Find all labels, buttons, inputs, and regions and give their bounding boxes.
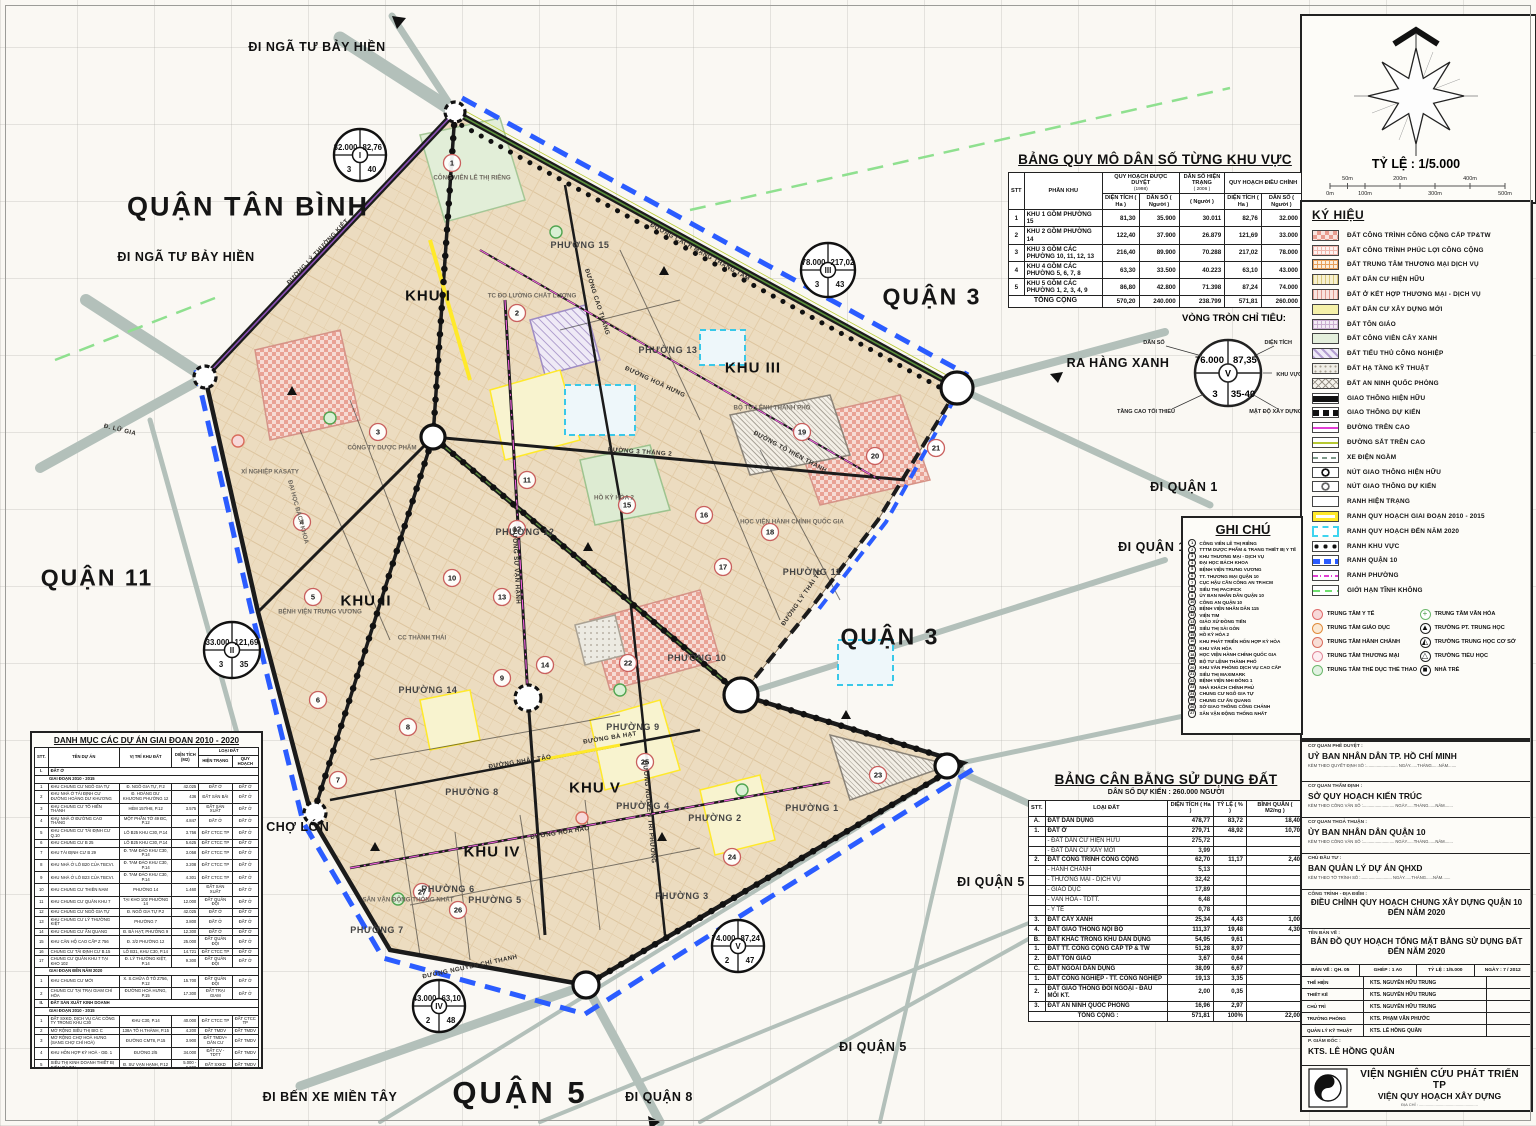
svg-text:50m: 50m bbox=[1342, 176, 1353, 182]
population-row: 1KHU 1 GỒM PHƯỜNG 1581,3035.90030.01182,… bbox=[1009, 210, 1302, 227]
legend-box: KÝ HIỆU ĐẤT CÔNG TRÌNH CÔNG CỘNG CẤP TP&… bbox=[1300, 200, 1533, 740]
legend-poi-item: TRUNG TÂM Y TẾ bbox=[1312, 608, 1418, 621]
legend-poi-grid: TRUNG TÂM Y TẾ+TRUNG TÂM VĂN HÓATRUNG TÂ… bbox=[1312, 608, 1531, 677]
svg-text:100m: 100m bbox=[1358, 191, 1372, 197]
poi-symbol-icon: △ bbox=[1420, 651, 1431, 662]
legend-swatch-bardash-icon bbox=[1312, 407, 1339, 418]
project-row: 14KHU CHUNG CƯ ẤN QUANGĐ. BÀ HẠT, PHƯỜNG… bbox=[35, 928, 259, 936]
project-row: 1KHU CHUNG CƯ MỚIX. S.CHỮA Ô TÔ Z756, P.… bbox=[35, 975, 259, 987]
map-label: ĐƯỜNG LÝ THƯỜNG KIỆT bbox=[286, 218, 351, 287]
legend-item: ĐƯỜNG TRÊN CAO bbox=[1312, 420, 1531, 435]
compass-box: TỶ LỆ : 1/5.000 50m 200m 400m 0m 100m 30… bbox=[1300, 14, 1536, 204]
poi-symbol-icon: ◭ bbox=[1420, 637, 1431, 648]
drawing-info-cell: TỶ LỆ : 1/5.000 bbox=[1417, 965, 1475, 976]
map-label: PHƯỜNG 13 bbox=[638, 345, 697, 355]
map-label: ĐƯỜNG NGUYỄN TRI PHƯƠNG bbox=[641, 760, 657, 863]
landuse-row: - THƯƠNG MẠI - DỊCH VỤ32,42 bbox=[1029, 876, 1304, 886]
projects-group-row: GIAI ĐOẠN 2010 - 2015 bbox=[35, 776, 259, 784]
landuse-row: 1.ĐẤT CÔNG NGHIỆP - TT. CÔNG NGHIỆP19,13… bbox=[1029, 975, 1304, 985]
map-label: PHƯỜNG 15 bbox=[550, 240, 609, 250]
legend-item: GIAO THÔNG DỰ KIẾN bbox=[1312, 406, 1531, 421]
legend-swatch-nodedash-icon bbox=[1312, 481, 1339, 492]
svg-text:0m: 0m bbox=[1326, 191, 1334, 197]
title-block: CƠ QUAN PHÊ DUYỆT :UỶ BAN NHÂN DÂN TP. H… bbox=[1300, 740, 1533, 1112]
landuse-row: - VĂN HÓA - TDTT.6,48 bbox=[1029, 895, 1304, 905]
map-label: PHƯỜNG 7 bbox=[350, 925, 403, 935]
institute-name-2: VIỆN QUY HOẠCH XÂY DỰNG bbox=[1354, 1091, 1525, 1101]
title-block-info-row: BẢN VẼ : QH. 05GHÉP : 1 A0TỶ LỆ : 1/5.00… bbox=[1302, 965, 1531, 977]
poi-symbol-icon bbox=[1312, 637, 1323, 648]
project-row: 3KHU CHUNG CƯ TÔ HIẾN THÀNHHẺM 157/H8, P… bbox=[35, 803, 259, 815]
map-label: PHƯỜNG 3 bbox=[655, 891, 708, 901]
projects-table: STT.TÊN DỰ ÁNVỊ TRÍ KHU ĐẤTDIỆN TÍCH (M2… bbox=[34, 747, 259, 1069]
landuse-row: - ĐẤT DÂN CƯ XÂY MỚI3,99 bbox=[1029, 846, 1304, 856]
legend-item: ĐẤT DÂN CƯ HIỆN HỮU bbox=[1312, 272, 1531, 287]
map-label: CÔNG TY DƯỢC PHẨM bbox=[347, 445, 416, 452]
svg-text:V: V bbox=[1225, 369, 1231, 379]
poi-symbol-icon bbox=[1312, 651, 1323, 662]
svg-text:200m: 200m bbox=[1393, 176, 1407, 182]
landuse-row: - ĐẤT DÂN CƯ HIỆN HỮU275,72 bbox=[1029, 836, 1304, 846]
svg-text:76.000: 76.000 bbox=[1195, 355, 1224, 366]
legend-poi-item: TRUNG TÂM GIÁO DỤC bbox=[1312, 622, 1418, 635]
map-label: KHU III bbox=[725, 360, 781, 377]
legend-item: ĐẤT TÔN GIÁO bbox=[1312, 317, 1531, 332]
map-label: ĐƯỜNG CAO THẮNG bbox=[583, 268, 611, 336]
projects-table-title: DANH MỤC CÁC DỰ ÁN GIAI ĐOẠN 2010 - 2020 bbox=[34, 736, 259, 745]
legend-poi-item: △TRƯỜNG TIỂU HỌC bbox=[1420, 650, 1526, 663]
landuse-row: 3.ĐẤT AN NINH QUỐC PHÒNG16,962,97 bbox=[1029, 1001, 1304, 1011]
legend-item: NÚT GIAO THÔNG DỰ KIẾN bbox=[1312, 480, 1531, 495]
legend-poi-item: TRUNG TÂM HÀNH CHÁNH bbox=[1312, 636, 1418, 649]
legend-item: ĐẤT CÔNG TRÌNH CÔNG CỘNG CẤP TP&TW bbox=[1312, 228, 1531, 243]
population-row: 4KHU 4 GỒM CÁC PHƯỜNG 5, 6, 7, 863,3033.… bbox=[1009, 261, 1302, 278]
map-label: QUẬN 5 bbox=[452, 1075, 587, 1111]
title-block-role-row: THIẾT KẾKTS. NGUYỄN HỮU TRUNG bbox=[1302, 989, 1531, 1001]
legend-item: ĐẤT HẠ TẦNG KỸ THUẬT bbox=[1312, 361, 1531, 376]
legend-item: ĐẤT CÔNG VIÊN CÂY XANH bbox=[1312, 332, 1531, 347]
map-label: ĐƯỜNG NGUYỄN CHÍ THANH bbox=[422, 954, 518, 981]
legend-item: GIAO THÔNG HIỆN HỮU bbox=[1312, 391, 1531, 406]
legend-item: ĐẤT DÂN CƯ XÂY DỰNG MỚI bbox=[1312, 302, 1531, 317]
project-row: 5KHU CHUNG CƯ TÁI ĐỊNH CƯ Q.10LÔ B25 KHU… bbox=[35, 827, 259, 839]
svg-text:87,35: 87,35 bbox=[1233, 355, 1257, 366]
population-row: 3KHU 3 GỒM CÁC PHƯỜNG 10, 11, 12, 13216,… bbox=[1009, 244, 1302, 261]
map-label: ĐI QUẬN 1 bbox=[1118, 540, 1186, 554]
project-row: 16CHUNG CƯ TÁI ĐỊNH CƯ B.15LÔ B31, KHU C… bbox=[35, 948, 259, 956]
map-label: PHƯỜNG 1 bbox=[785, 803, 838, 813]
legend-swatch-pstripe-icon bbox=[1312, 348, 1339, 359]
legend-swatch-vlpink-icon bbox=[1312, 289, 1339, 300]
project-row: 17CHUNG CƯ QUÂN KHU 7 TẠI KHO 102Đ. LÝ T… bbox=[35, 956, 259, 968]
legend-swatch-metro-icon bbox=[1312, 452, 1339, 463]
project-row: 7KHU TÁI ĐỊNH CƯ B 29Đ. TAM ĐẢO KHU C30,… bbox=[35, 847, 259, 859]
scale-label: TỶ LỆ : 1/5.000 bbox=[1372, 156, 1460, 171]
population-table: STTPHÂN KHUQUY HOẠCH ĐƯỢC DUYỆT(1998)DÂN… bbox=[1008, 172, 1302, 308]
map-label: KHU V bbox=[569, 780, 621, 797]
map-label: ĐI QUẬN 5 bbox=[839, 1040, 907, 1054]
indicator-title: VÒNG TRÒN CHỈ TIÊU: bbox=[1182, 312, 1286, 324]
landuse-row: 4.ĐẤT GIAO THÔNG NỘI BỘ111,3719,484,30 bbox=[1029, 925, 1304, 935]
svg-text:TẦNG CAO TỐI THIỂU: TẦNG CAO TỐI THIỂU bbox=[1117, 408, 1175, 415]
legend-poi-item: TRUNG TÂM THỂ DỤC THỂ THAO bbox=[1312, 664, 1418, 677]
legend-item: ĐƯỜNG SẮT TRÊN CAO bbox=[1312, 435, 1531, 450]
population-table-title: BẢNG QUY MÔ DÂN SỐ TỪNG KHU VỰC bbox=[1008, 152, 1302, 167]
map-label: ĐƯỜNG HÒA HẢO bbox=[530, 825, 590, 841]
title-block-roles: THỂ HIỆNKTS. NGUYỄN HỮU TRUNGTHIẾT KẾKTS… bbox=[1302, 977, 1531, 1037]
svg-text:500m: 500m bbox=[1498, 191, 1512, 197]
project-row: 1ĐẤT SXKD, DỊCH VỤ CÁC CÔNG TY TRONG KHU… bbox=[35, 1015, 259, 1027]
project-row: 9KHU NHÀ Ở LÔ B23 CỦA TBCVI.Đ. TAM ĐẢO K… bbox=[35, 872, 259, 884]
landuse-row: 1.ĐẤT TT. CÔNG CỘNG CẤP TP & TW51,288,97 bbox=[1029, 945, 1304, 955]
legend-poi-item: ◭TRƯỜNG TRUNG HỌC CƠ SỞ bbox=[1420, 636, 1526, 649]
title-block-approval-section: CƠ QUAN THẨM ĐỊNH :SỞ QUY HOẠCH KIẾN TRÚ… bbox=[1302, 782, 1531, 818]
map-label: QUẬN 11 bbox=[41, 565, 153, 592]
map-label: PHƯỜNG 14 bbox=[398, 685, 457, 695]
legend-swatch-yellow-icon bbox=[1312, 304, 1339, 315]
map-label: PHƯỜNG 5 bbox=[468, 895, 521, 905]
project-row: 5SIÊU THỊ KINH DOANH THIẾT BỊ ĐIỆN TỬ TI… bbox=[35, 1059, 259, 1069]
title-block-approval-section: CHỦ ĐẦU TƯ :BAN QUẢN LÝ DỰ ÁN QHXDKÈM TH… bbox=[1302, 854, 1531, 890]
legend-item: RANH KHU VỰC bbox=[1312, 539, 1531, 554]
title-block-approval-section: CƠ QUAN PHÊ DUYỆT :UỶ BAN NHÂN DÂN TP. H… bbox=[1302, 742, 1531, 782]
project-row: 15KHU CĂN HỘ CAO CẤP Z 756Đ. 3/2 PHƯỜNG … bbox=[35, 936, 259, 948]
project-row: 11KHU CHUNG CƯ QUÂN KHU 7TẠI KHO 102 PHƯ… bbox=[35, 896, 259, 908]
map-label: ĐI BẾN XE MIỀN TÂY bbox=[263, 1090, 398, 1104]
legend-item: NÚT GIAO THÔNG HIỆN HỮU bbox=[1312, 465, 1531, 480]
map-label: KHU II bbox=[341, 593, 392, 610]
landuse-row: - HÀNH CHÁNH5,13 bbox=[1029, 866, 1304, 876]
map-label: PHƯỜNG 2 bbox=[688, 813, 741, 823]
map-label: SÂN VẬN ĐỘNG THỐNG NHẤT bbox=[362, 897, 453, 904]
project-row: 1KHU CHUNG CƯ NGÔ GIA TỰĐ. NGÔ GIA TỰ, P… bbox=[35, 783, 259, 791]
map-label: ĐƯỜNG 3 THÁNG 2 bbox=[608, 446, 673, 457]
map-label: TC ĐO LƯỜNG CHẤT LƯỢNG bbox=[488, 293, 577, 300]
legend-items: ĐẤT CÔNG TRÌNH CÔNG CỘNG CẤP TP&TWĐẤT CÔ… bbox=[1312, 228, 1531, 598]
project-row: 2CHUNG CƯ TẠI TRẠI GIAM CHÍ HÒAĐƯỜNG HOÀ… bbox=[35, 988, 259, 1000]
map-label: QUẬN 3 bbox=[883, 284, 982, 311]
landuse-row: - Y TẾ0,78 bbox=[1029, 905, 1304, 915]
legend-poi-item: ▲TRƯỜNG PT. TRUNG HỌC bbox=[1420, 622, 1526, 635]
poi-symbol-icon: + bbox=[1420, 609, 1431, 620]
legend-item: XE ĐIỆN NGẦM bbox=[1312, 450, 1531, 465]
projects-group-row: GIAI ĐOẠN 2010 - 2015 bbox=[35, 1008, 259, 1016]
institute-logo bbox=[1308, 1068, 1348, 1108]
map-label: ĐI NGÃ TƯ BẢY HIỀN bbox=[117, 250, 254, 264]
legend-item: ĐẤT TRUNG TÂM THƯƠNG MẠI DỊCH VỤ bbox=[1312, 258, 1531, 273]
landuse-table-title: BẢNG CÂN BẰNG SỬ DỤNG ĐẤT bbox=[1028, 772, 1304, 787]
drawing-info-cell: GHÉP : 1 A0 bbox=[1360, 965, 1418, 976]
compass-rose: TỶ LỆ : 1/5.000 50m 200m 400m 0m 100m 30… bbox=[1302, 16, 1531, 198]
map-label: Đ. LỮ GIA bbox=[103, 423, 137, 438]
legend-swatch-node-icon bbox=[1312, 467, 1339, 478]
map-label: PHƯỜNG 6 bbox=[421, 884, 474, 894]
poi-symbol-icon: ▲ bbox=[1420, 623, 1431, 634]
landuse-row: 3.ĐẤT CÂY XANH25,344,431,00 bbox=[1029, 915, 1304, 925]
legend-item: RANH QUY HOẠCH GIAI ĐOẠN 2010 - 2015 bbox=[1312, 509, 1531, 524]
legend-swatch-rail-icon bbox=[1312, 437, 1339, 448]
map-label: PHƯỜNG 4 bbox=[616, 801, 669, 811]
map-label: PHƯỜNG 12 bbox=[495, 527, 554, 537]
project-row: 8KHU NHÀ Ở LÔ B20 CỦA TBCVI.Đ. TAM ĐẢO K… bbox=[35, 860, 259, 872]
map-label: ĐI QUẬN 8 bbox=[625, 1090, 693, 1104]
poi-symbol-icon bbox=[1312, 623, 1323, 634]
svg-text:KHU VỰC: KHU VỰC bbox=[1276, 372, 1302, 378]
plan-sheet: 1234567891011121314151617181920212223242… bbox=[0, 0, 1536, 1126]
title-block-approvals: CƠ QUAN PHÊ DUYỆT :UỶ BAN NHÂN DÂN TP. H… bbox=[1302, 742, 1531, 890]
legend-swatch-vlyellow-icon bbox=[1312, 274, 1339, 285]
map-label: KHU IV bbox=[464, 844, 521, 861]
title-block-role-row: QUẢN LÝ KỸ THUẬTKTS. LÊ HỒNG QUÂN bbox=[1302, 1025, 1531, 1037]
legend-item: ĐẤT CÔNG TRÌNH PHÚC LỢI CÔNG CỘNG bbox=[1312, 243, 1531, 258]
map-label: QUẬN 3 bbox=[841, 624, 940, 651]
poi-symbol-icon bbox=[1312, 665, 1323, 676]
map-label: ĐƯỜNG NHẬT TẢO bbox=[488, 754, 552, 771]
landuse-row: 1.ĐẤT Ở279,7148,9210,70 bbox=[1029, 826, 1304, 836]
map-label: ĐI QUẬN 1 bbox=[1150, 480, 1218, 494]
map-label: ĐƯỜNG TÔ HIẾN THÀNH bbox=[752, 430, 828, 475]
legend-swatch-cross-icon bbox=[1312, 378, 1339, 389]
landuse-row: - GIÁO DỤC17,89 bbox=[1029, 886, 1304, 896]
legend-swatch-checker-icon bbox=[1312, 230, 1339, 241]
landuse-row: C.ĐẤT NGOÀI DÂN DỤNG38,096,67 bbox=[1029, 965, 1304, 975]
population-total-row: TỔNG CỘNG570,20240.000238.799571,81260.0… bbox=[1009, 296, 1302, 307]
title-block-role-row: THỂ HIỆNKTS. NGUYỄN HỮU TRUNG bbox=[1302, 977, 1531, 989]
legend-item: RANH QUY HOẠCH ĐẾN NĂM 2020 bbox=[1312, 524, 1531, 539]
legend-swatch-gdots-icon bbox=[1312, 363, 1339, 374]
note-item: 2TTTM DƯỢC PHẨM & TRANG THIẾT BỊ Y TẾ bbox=[1188, 547, 1298, 554]
poi-symbol-icon bbox=[1312, 609, 1323, 620]
legend-item: RANH PHƯỜNG bbox=[1312, 568, 1531, 583]
legend-item: RANH QUẬN 10 bbox=[1312, 554, 1531, 569]
map-label: CC THÀNH THÁI bbox=[398, 635, 446, 642]
legend-swatch-gridorange-icon bbox=[1312, 259, 1339, 270]
map-label: ĐẠI HỌC BÁCH KHOA bbox=[286, 479, 310, 544]
institute-address: ĐỊA CHỈ : ..............................… bbox=[1354, 1102, 1525, 1107]
legend-swatch-lavender-icon bbox=[1312, 319, 1339, 330]
map-label: ĐƯỜNG CÁCH MẠNG THÁNG TÁM bbox=[649, 221, 751, 282]
landuse-table-block: BẢNG CÂN BẰNG SỬ DỤNG ĐẤT DÂN SỐ DỰ KIẾN… bbox=[1028, 772, 1304, 1022]
population-table-block: BẢNG QUY MÔ DÂN SỐ TỪNG KHU VỰC STTPHÂN … bbox=[1008, 152, 1302, 308]
poi-symbol-icon: ■ bbox=[1420, 665, 1431, 676]
title-block-drawing-name: TÊN BẢN VẼ : BẢN ĐỒ QUY HOẠCH TỔNG MẶT B… bbox=[1302, 929, 1531, 966]
notes-box: GHI CHÚ 1CÔNG VIÊN LÊ THỊ RIÊNG2TTTM DƯỢ… bbox=[1181, 516, 1303, 735]
map-label: QUẬN TÂN BÌNH bbox=[127, 192, 369, 223]
title-block-director: P. GIÁM ĐỐC : KTS. LÊ HỒNG QUÂN bbox=[1302, 1037, 1531, 1066]
project-row: 10KHU CHUNG CƯ THIÊN NAMPHƯỜNG 141.460ĐẤ… bbox=[35, 884, 259, 896]
map-label: XÍ NGHIỆP KASATY bbox=[241, 469, 299, 476]
svg-text:35-40: 35-40 bbox=[1231, 389, 1255, 400]
map-label: ĐƯỜNG HOÀ HƯNG bbox=[624, 365, 687, 399]
notes-title: GHI CHÚ bbox=[1188, 522, 1298, 537]
drawing-info-cell: NGÀY : 7 / 2012 bbox=[1475, 965, 1532, 976]
project-row: 4KHU NHÀ Ở ĐƯỜNG CAO THẮNGMỘT PHẦN TỜ 49… bbox=[35, 815, 259, 827]
legend-swatch-yellowbar-icon bbox=[1312, 511, 1339, 522]
project-row: 3MỞ RỘNG CHỢ HOÀ HƯNG (SANG CHỢ CHÍ HOÀ)… bbox=[35, 1035, 259, 1047]
landuse-row: 2.ĐẤT GIAO THÔNG ĐỐI NGOẠI - ĐẦU MỐI KT.… bbox=[1029, 984, 1304, 1001]
map-label: PHƯỜNG 8 bbox=[445, 787, 498, 797]
title-block-approval-section: CƠ QUAN THOẢ THUẬN :ỦY BAN NHÂN DÂN QUẬN… bbox=[1302, 818, 1531, 854]
map-label: ĐƯỜNG BÀ HẠT bbox=[583, 730, 637, 745]
population-row: 2KHU 2 GỒM PHƯỜNG 14122,4037.90026.87912… bbox=[1009, 227, 1302, 244]
institute-block: VIỆN NGHIÊN CỨU PHÁT TRIỂN TP VIỆN QUY H… bbox=[1302, 1066, 1531, 1110]
projects-group-row: GIAI ĐOẠN ĐẾN NĂM 2020 bbox=[35, 968, 259, 976]
population-row: 5KHU 5 GỒM CÁC PHƯỜNG 1, 2, 3, 4, 986,80… bbox=[1009, 279, 1302, 296]
note-item: 27SÂN VẬN ĐỘNG THỐNG NHẤT bbox=[1188, 710, 1298, 717]
legend-swatch-gridpink-icon bbox=[1312, 245, 1339, 256]
map-label: ĐI NGÃ TƯ BẢY HIỀN bbox=[248, 40, 385, 54]
project-row: 2KHU NHÀ Ở TÁI ĐỊNH CƯ ĐƯỜNG HOÀNG DƯ KH… bbox=[35, 791, 259, 803]
svg-text:3: 3 bbox=[1212, 389, 1217, 400]
indicator-diagram: VÒNG TRÒN CHỈ TIÊU: V 76.000 87,35 3 35-… bbox=[1096, 310, 1306, 426]
legend-swatch-green-icon bbox=[1312, 333, 1339, 344]
legend-swatch-barsolid-icon bbox=[1312, 393, 1339, 404]
legend-swatch-dashblue-icon bbox=[1312, 555, 1339, 566]
scale-bar: 50m 200m 400m 0m 100m 300m 500m bbox=[1326, 176, 1512, 197]
projects-section-row: II.ĐẤT SẢN XUẤT KINH DOANH bbox=[35, 1000, 259, 1008]
title-block-role-row: TRƯỞNG PHÒNGKTS. PHẠM VĂN PHƯỚC bbox=[1302, 1013, 1531, 1025]
drawing-info-cell: BẢN VẼ : QH. 05 bbox=[1302, 965, 1360, 976]
project-row: 13KHU CHUNG CƯ LÝ THƯỜNG KIỆTPHƯỜNG 73.8… bbox=[35, 916, 259, 928]
svg-text:MẬT ĐỘ XÂY DỰNG: MẬT ĐỘ XÂY DỰNG bbox=[1249, 407, 1302, 415]
legend-swatch-elev-icon bbox=[1312, 422, 1339, 433]
legend-swatch-plain-icon bbox=[1312, 496, 1339, 507]
svg-text:DÂN SỐ: DÂN SỐ bbox=[1143, 339, 1165, 346]
map-label: BỘ TƯ LỆNH THÀNH PHỐ bbox=[734, 405, 811, 412]
legend-swatch-dashdotmag-icon bbox=[1312, 570, 1339, 581]
project-row: 12KHU CHUNG CƯ NGÔ GIA TỰĐ. NGÔ GIA TỰ P… bbox=[35, 908, 259, 916]
landuse-row: 2.ĐẤT TÔN GIÁO3,670,64 bbox=[1029, 955, 1304, 965]
projects-section-row: I.ĐẤT Ở bbox=[35, 768, 259, 776]
svg-text:300m: 300m bbox=[1428, 191, 1442, 197]
svg-text:400m: 400m bbox=[1463, 176, 1477, 182]
legend-swatch-dashgreen-icon bbox=[1312, 585, 1339, 596]
legend-title: KÝ HIỆU bbox=[1312, 208, 1531, 222]
legend-poi-item: +TRUNG TÂM VĂN HÓA bbox=[1420, 608, 1526, 621]
landuse-row: 2.ĐẤT CÔNG TRÌNH CÔNG CỘNG62,7011,172,40 bbox=[1029, 856, 1304, 866]
title-block-role-row: CHỦ TRÌKTS. NGUYỄN HỮU TRUNG bbox=[1302, 1001, 1531, 1013]
map-label: BỆNH VIỆN TRƯNG VƯƠNG bbox=[278, 609, 362, 616]
projects-table-box: DANH MỤC CÁC DỰ ÁN GIAI ĐOẠN 2010 - 2020… bbox=[30, 731, 263, 1069]
legend-item: RANH HIỆN TRẠNG bbox=[1312, 494, 1531, 509]
project-row: 6KHU CHUNG CƯ B 25LÔ B25 KHU C30, P.145.… bbox=[35, 840, 259, 848]
landuse-table: STT.LOẠI ĐẤTDIỆN TÍCH ( Ha )TỶ LỆ ( % )B… bbox=[1028, 800, 1304, 1022]
map-label: PHƯỜNG 10 bbox=[667, 653, 726, 663]
legend-item: GIỚI HẠN TĨNH KHÔNG bbox=[1312, 583, 1531, 598]
landuse-row: A.ĐẤT DÂN DỤNG478,7783,7218,40 bbox=[1029, 816, 1304, 826]
institute-name-1: VIỆN NGHIÊN CỨU PHÁT TRIỂN TP bbox=[1354, 1069, 1525, 1091]
map-label: CÔNG VIÊN LÊ THỊ RIÊNG bbox=[433, 175, 510, 182]
legend-item: ĐẤT Ở KẾT HỢP THƯƠNG MẠI - DỊCH VỤ bbox=[1312, 287, 1531, 302]
legend-swatch-cyandash-icon bbox=[1312, 526, 1339, 537]
map-label: ĐƯỜNG LÝ THÁI TỔ bbox=[780, 569, 824, 628]
legend-item: ĐẤT TIỂU THỦ CÔNG NGHIỆP bbox=[1312, 346, 1531, 361]
legend-item: ĐẤT AN NINH QUỐC PHÒNG bbox=[1312, 376, 1531, 391]
landuse-row: B.ĐẤT KHÁC TRONG KHU DÂN DỤNG54,959,61 bbox=[1029, 935, 1304, 945]
map-label: KHU I bbox=[405, 288, 451, 305]
legend-poi-item: TRUNG TÂM THƯƠNG MẠI bbox=[1312, 650, 1418, 663]
project-row: 4KHU HỖN HỢP KỲ HOÀ - GĐ. 1ĐƯỜNG 2/534.0… bbox=[35, 1047, 259, 1059]
legend-swatch-dotsblack-icon bbox=[1312, 541, 1339, 552]
title-block-project: CÔNG TRÌNH - ĐỊA ĐIỂM : ĐIỀU CHỈNH QUY H… bbox=[1302, 890, 1531, 929]
map-label: ĐI QUẬN 5 bbox=[957, 875, 1025, 889]
landuse-total-row: TỔNG CỘNG :571,81100%22,00 bbox=[1029, 1011, 1304, 1021]
landuse-subtitle: DÂN SỐ DỰ KIẾN : 260.000 NGƯỜI bbox=[1028, 789, 1304, 796]
map-label: HỒ KỲ HÒA 2 bbox=[594, 495, 634, 502]
project-row: 2MỞ RỘNG SIÊU THỊ BIG C138A TÔ H.THÀNH, … bbox=[35, 1027, 259, 1035]
map-label: HỌC VIỆN HÀNH CHÍNH QUỐC GIA bbox=[740, 519, 844, 526]
map-label: ĐƯỜNG SƯ VẠN HẠNH bbox=[511, 528, 522, 605]
notes-list: 1CÔNG VIÊN LÊ THỊ RIÊNG2TTTM DƯỢC PHẨM &… bbox=[1188, 540, 1298, 717]
svg-text:DIỆN TÍCH: DIỆN TÍCH bbox=[1265, 338, 1293, 346]
legend-poi-item: ■NHÀ TRẺ bbox=[1420, 664, 1526, 677]
